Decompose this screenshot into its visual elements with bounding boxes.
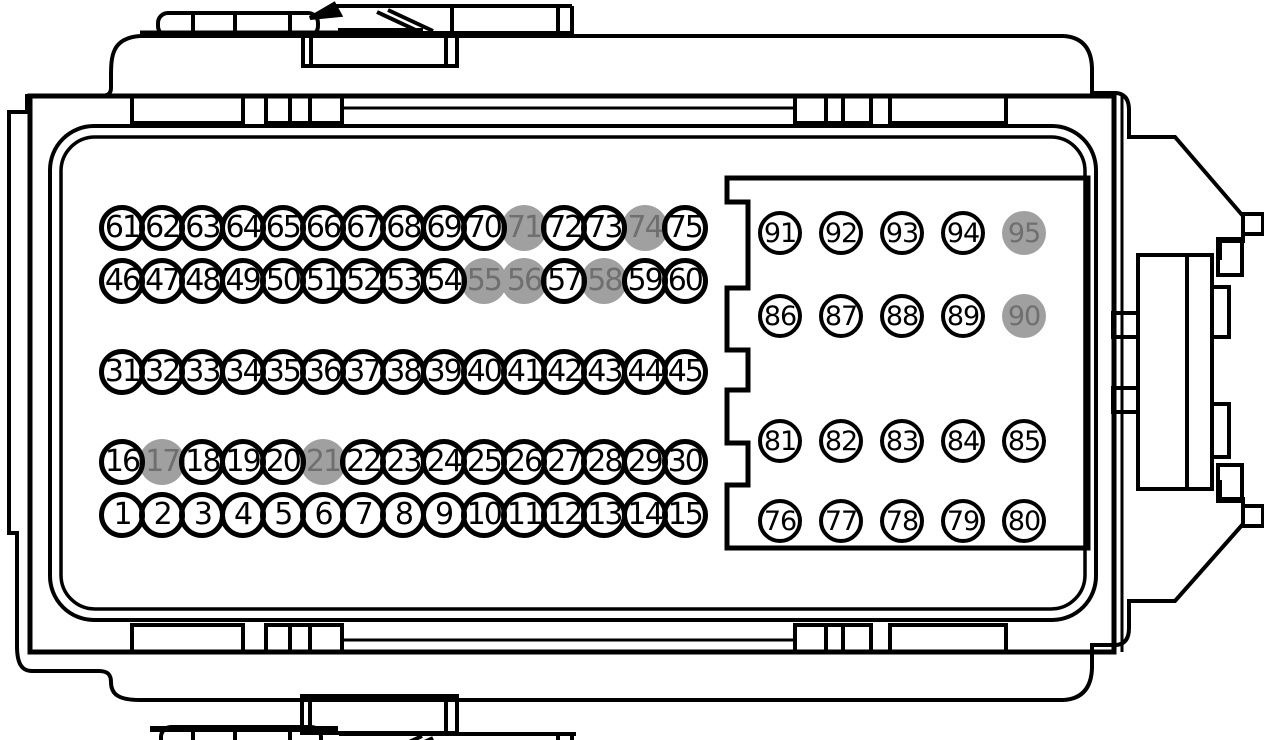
pin-95: 95: [1002, 211, 1046, 255]
pin-19: 19: [220, 439, 266, 485]
pin-20: 20: [260, 439, 306, 485]
pin-12: 12: [541, 492, 587, 538]
pin-51: 51: [300, 258, 346, 304]
pin-49: 49: [220, 258, 266, 304]
pin-92: 92: [819, 211, 863, 255]
pin-16: 16: [99, 439, 145, 485]
housing-right-key-tab-top: [1243, 214, 1263, 234]
pin-47: 47: [139, 258, 185, 304]
pin-90: 90: [1002, 294, 1046, 338]
pin-6: 6: [300, 492, 346, 538]
pin-31: 31: [99, 349, 145, 395]
pin-14: 14: [622, 492, 668, 538]
pin-69: 69: [421, 205, 467, 251]
pin-57: 57: [541, 258, 587, 304]
pin-55: 55: [461, 258, 507, 304]
pin-5: 5: [260, 492, 306, 538]
pin-81: 81: [758, 419, 802, 463]
pin-9: 9: [421, 492, 467, 538]
pin-11: 11: [501, 492, 547, 538]
pin-87: 87: [819, 294, 863, 338]
pin-29: 29: [622, 439, 668, 485]
pin-21: 21: [300, 439, 346, 485]
pin-44: 44: [622, 349, 668, 395]
pin-13: 13: [581, 492, 627, 538]
pin-1: 1: [99, 492, 145, 538]
housing-right-contour-bottom: [1064, 524, 1243, 700]
pin-18: 18: [179, 439, 225, 485]
bottom-latch: [150, 696, 576, 740]
pin-45: 45: [662, 349, 708, 395]
pin-40: 40: [461, 349, 507, 395]
pin-76: 76: [758, 499, 802, 543]
pin-53: 53: [380, 258, 426, 304]
pin-24: 24: [421, 439, 467, 485]
pin-54: 54: [421, 258, 467, 304]
pin-65: 65: [260, 205, 306, 251]
pin-25: 25: [461, 439, 507, 485]
pin-52: 52: [340, 258, 386, 304]
pin-7: 7: [340, 492, 386, 538]
pin-46: 46: [99, 258, 145, 304]
pin-88: 88: [880, 294, 924, 338]
pin-41: 41: [501, 349, 547, 395]
pin-56: 56: [501, 258, 547, 304]
pin-59: 59: [622, 258, 668, 304]
housing-right-key-tab-bottom: [1243, 506, 1263, 526]
pin-58: 58: [581, 258, 627, 304]
connector-pinout-diagram: 6162636465666768697071727374754647484950…: [0, 0, 1264, 740]
pin-22: 22: [340, 439, 386, 485]
pin-83: 83: [880, 419, 924, 463]
housing-right-contour-top: [1064, 36, 1243, 216]
frame-bottom-tabs: [132, 625, 1006, 652]
pin-36: 36: [300, 349, 346, 395]
pin-50: 50: [260, 258, 306, 304]
pin-4: 4: [220, 492, 266, 538]
latch-catch-box-top: [303, 36, 457, 66]
pin-39: 39: [421, 349, 467, 395]
pin-84: 84: [941, 419, 985, 463]
pin-2: 2: [139, 492, 185, 538]
pin-94: 94: [941, 211, 985, 255]
pin-32: 32: [139, 349, 185, 395]
pin-77: 77: [819, 499, 863, 543]
pin-74: 74: [622, 205, 668, 251]
pin-61: 61: [99, 205, 145, 251]
pin-28: 28: [581, 439, 627, 485]
pin-48: 48: [179, 258, 225, 304]
pin-71: 71: [501, 205, 547, 251]
pin-63: 63: [179, 205, 225, 251]
pin-60: 60: [662, 258, 708, 304]
pin-42: 42: [541, 349, 587, 395]
pin-89: 89: [941, 294, 985, 338]
pin-37: 37: [340, 349, 386, 395]
pin-82: 82: [819, 419, 863, 463]
pin-43: 43: [581, 349, 627, 395]
pin-91: 91: [758, 211, 802, 255]
pin-70: 70: [461, 205, 507, 251]
pin-72: 72: [541, 205, 587, 251]
pin-10: 10: [461, 492, 507, 538]
top-latch: [158, 4, 572, 66]
pin-30: 30: [662, 439, 708, 485]
pin-23: 23: [380, 439, 426, 485]
right-side-body: [1138, 255, 1212, 489]
pin-64: 64: [220, 205, 266, 251]
pin-73: 73: [581, 205, 627, 251]
pin-35: 35: [260, 349, 306, 395]
pin-38: 38: [380, 349, 426, 395]
pin-93: 93: [880, 211, 924, 255]
pin-15: 15: [662, 492, 708, 538]
pin-27: 27: [541, 439, 587, 485]
pin-75: 75: [662, 205, 708, 251]
pin-34: 34: [220, 349, 266, 395]
pin-85: 85: [1002, 419, 1046, 463]
pin-79: 79: [941, 499, 985, 543]
pin-68: 68: [380, 205, 426, 251]
pin-17: 17: [139, 439, 185, 485]
pin-62: 62: [139, 205, 185, 251]
pin-78: 78: [880, 499, 924, 543]
pin-26: 26: [501, 439, 547, 485]
pin-80: 80: [1002, 499, 1046, 543]
pin-67: 67: [340, 205, 386, 251]
pin-66: 66: [300, 205, 346, 251]
pin-86: 86: [758, 294, 802, 338]
pin-33: 33: [179, 349, 225, 395]
frame-top-tabs: [132, 96, 1006, 123]
